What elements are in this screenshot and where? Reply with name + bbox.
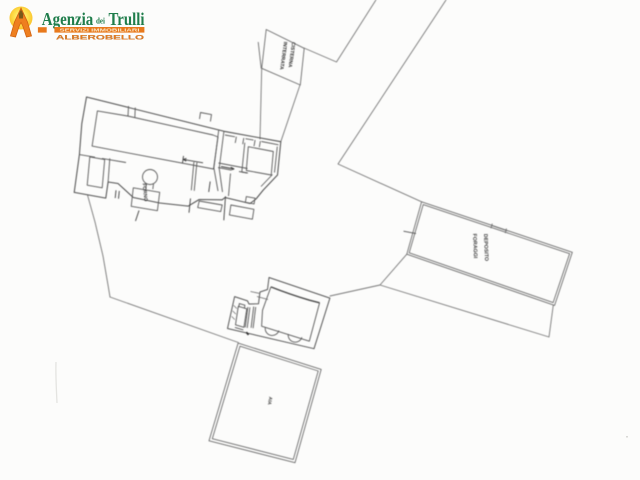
svg-text:Agenzia: Agenzia: [42, 9, 94, 29]
svg-text:Trulli: Trulli: [109, 9, 145, 29]
svg-text:FORAGGI: FORAGGI: [471, 234, 478, 259]
svg-text:DEPOSITO: DEPOSITO: [482, 234, 489, 261]
svg-text:dei: dei: [96, 16, 106, 26]
svg-text:SERVIZI IMMOBILIARI: SERVIZI IMMOBILIARI: [60, 28, 140, 33]
svg-text:ALBEROBELLO: ALBEROBELLO: [56, 34, 144, 41]
